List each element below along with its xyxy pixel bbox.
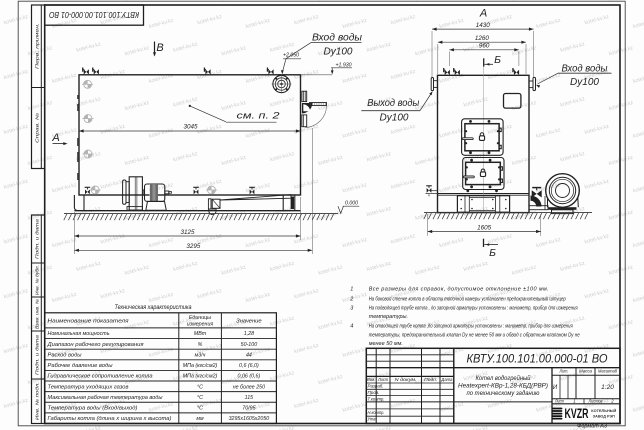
svg-text:МВт: МВт	[194, 331, 207, 337]
svg-text:Подп.: Подп.	[424, 377, 437, 382]
svg-text:°С: °С	[197, 395, 203, 401]
svg-text:А: А	[51, 132, 59, 144]
svg-text:Dy100: Dy100	[324, 47, 353, 58]
svg-text:Лит.: Лит.	[559, 369, 569, 374]
svg-text:Б: Б	[494, 54, 501, 66]
svg-text:Пров.: Пров.	[368, 390, 380, 395]
svg-text:Гидравлическое сопротивление к: Гидравлическое сопротивление котла	[48, 374, 154, 380]
svg-text:температуры, предохранительный: температуры, предохранительный клапан Dу…	[369, 331, 580, 338]
svg-text:Подп. и дата: Подп. и дата	[34, 218, 39, 259]
svg-text:%: %	[198, 342, 203, 348]
svg-text:3295х1605х2050: 3295х1605х2050	[229, 416, 270, 422]
svg-text:Температура воды (Вход/выход): Температура воды (Вход/выход)	[48, 406, 138, 412]
svg-text:Вход воды: Вход воды	[312, 33, 363, 44]
svg-text:+2.050: +2.050	[283, 53, 299, 59]
svg-text:по техническому заданию: по техническому заданию	[467, 389, 540, 397]
svg-text:Справ. №: Справ. №	[34, 112, 39, 143]
svg-text:3125: 3125	[180, 229, 195, 236]
svg-text:Т.контр.: Т.контр.	[368, 397, 385, 402]
svg-text:Подп. и дата: Подп. и дата	[34, 334, 39, 375]
svg-text:0,06 (0,6): 0,06 (0,6)	[238, 374, 261, 380]
svg-text:70/95: 70/95	[242, 406, 255, 412]
svg-text:Инв. № подл.: Инв. № подл.	[34, 382, 39, 420]
svg-text:+1.930: +1.930	[335, 62, 351, 68]
svg-text:Техническая характеристика: Техническая характеристика	[115, 304, 192, 311]
svg-text:мм: мм	[196, 416, 204, 422]
svg-text:3295: 3295	[186, 243, 201, 250]
svg-text:KVZR: KVZR	[565, 406, 589, 421]
svg-text:Инв. № дубл.: Инв. № дубл.	[34, 265, 39, 295]
svg-text:менее 50 мм.: менее 50 мм.	[369, 341, 403, 347]
svg-text:Heatexpert-КВр-1,28-КБД(РВР): Heatexpert-КВр-1,28-КБД(РВР)	[458, 383, 548, 390]
svg-text:0,6 (6,0): 0,6 (6,0)	[239, 363, 259, 369]
svg-text:И: И	[553, 385, 558, 391]
svg-text:Номинальная мощность: Номинальная мощность	[48, 331, 110, 337]
svg-text:Котел водогрейный: Котел водогрейный	[476, 374, 531, 382]
svg-text:44: 44	[246, 352, 252, 358]
svg-text:960: 960	[479, 43, 490, 50]
svg-text:°С: °С	[197, 384, 203, 390]
svg-text:Разраб.: Разраб.	[368, 384, 384, 389]
svg-text:1:20: 1:20	[601, 384, 614, 391]
svg-text:N докум.: N докум.	[395, 377, 417, 382]
svg-text:МПа (кгс/см2): МПа (кгс/см2)	[183, 363, 218, 369]
svg-text:Температура уходящих газов: Температура уходящих газов	[48, 384, 129, 390]
svg-text:50-100: 50-100	[241, 342, 258, 348]
svg-text:4: 4	[350, 324, 353, 330]
svg-text:Dy100: Dy100	[380, 112, 409, 123]
svg-text:Дата: Дата	[440, 377, 452, 382]
svg-text:МПа (кгс/см2): МПа (кгс/см2)	[183, 374, 218, 380]
svg-text:измерения: измерения	[187, 322, 214, 328]
svg-text:Максимальная рабочая температу: Максимальная рабочая температура воды	[48, 395, 164, 401]
svg-text:1260: 1260	[475, 35, 490, 42]
svg-text:Б: Б	[489, 247, 496, 259]
svg-text:Габариты котла (длина х ширина: Габариты котла (длина х ширина х высота)	[48, 416, 172, 422]
svg-text:0.000: 0.000	[345, 200, 358, 206]
svg-text:3045: 3045	[183, 124, 198, 131]
svg-text:На отводящей трубе котла ,до з: На отводящей трубе котла ,до запорной ар…	[369, 323, 573, 330]
svg-text:м3/ч: м3/ч	[195, 352, 206, 358]
svg-text:не более 250: не более 250	[233, 384, 265, 390]
svg-text:Утв.: Утв.	[368, 417, 377, 422]
svg-text:2: 2	[349, 296, 353, 302]
svg-text:см. п. 2: см. п. 2	[237, 111, 281, 122]
svg-text:На боковой стенке котла в обла: На боковой стенке котла в области топочн…	[369, 295, 566, 302]
svg-text:КВТУ.100.101.00.000-01 ВО: КВТУ.100.101.00.000-01 ВО	[49, 10, 140, 19]
svg-text:КОТЕЛЬНЫЙ: КОТЕЛЬНЫЙ	[591, 408, 616, 413]
svg-text:На подводящей трубе котла ,: На подводящей трубе котла , до запорной …	[369, 304, 578, 311]
svg-text:КВТУ.100.101.00.000-01 ВО: КВТУ.100.101.00.000-01 ВО	[467, 353, 608, 365]
svg-text:ЗАВОД РЭП: ЗАВОД РЭП	[593, 413, 615, 418]
svg-text:1605: 1605	[477, 224, 492, 231]
svg-text:°С: °С	[197, 406, 203, 412]
svg-text:Dy100: Dy100	[570, 77, 599, 88]
svg-text:Изм.: Изм.	[367, 377, 376, 382]
svg-text:Расход воды: Расход воды	[48, 352, 83, 358]
svg-text:Н.контр.: Н.контр.	[368, 410, 385, 415]
svg-text:Листов: Листов	[588, 399, 604, 404]
svg-text:Выход воды: Выход воды	[367, 98, 420, 109]
svg-text:Наименование показателя: Наименование показателя	[48, 318, 129, 324]
svg-text:Значение: Значение	[236, 318, 262, 324]
svg-text:1430: 1430	[476, 22, 491, 29]
svg-text:Масштаб: Масштаб	[598, 369, 617, 374]
svg-text:Лист: Лист	[377, 377, 388, 382]
svg-text:Все размеры для справок, допус: Все размеры для справок, допустимое откл…	[369, 287, 549, 293]
svg-text:Перв. примен.: Перв. примен.	[34, 23, 39, 69]
svg-text:Рабочее давление воды: Рабочее давление воды	[48, 363, 114, 369]
svg-text:температуры.: температуры.	[369, 314, 408, 320]
svg-text:А: А	[479, 8, 487, 20]
svg-text:Диапазон рабочего регулировани: Диапазон рабочего регулирования	[46, 342, 143, 348]
svg-text:1,28: 1,28	[244, 331, 254, 337]
svg-text:Масса: Масса	[579, 369, 592, 374]
svg-text:В: В	[156, 42, 163, 54]
svg-text:Лист: Лист	[554, 399, 564, 404]
svg-text:Единицы: Единицы	[189, 315, 211, 321]
svg-text:Формат А3: Формат А3	[577, 423, 607, 429]
svg-text:1: 1	[350, 287, 353, 293]
svg-text:Взам. инв. №: Взам. инв. №	[34, 298, 39, 329]
svg-text:115: 115	[245, 395, 253, 401]
